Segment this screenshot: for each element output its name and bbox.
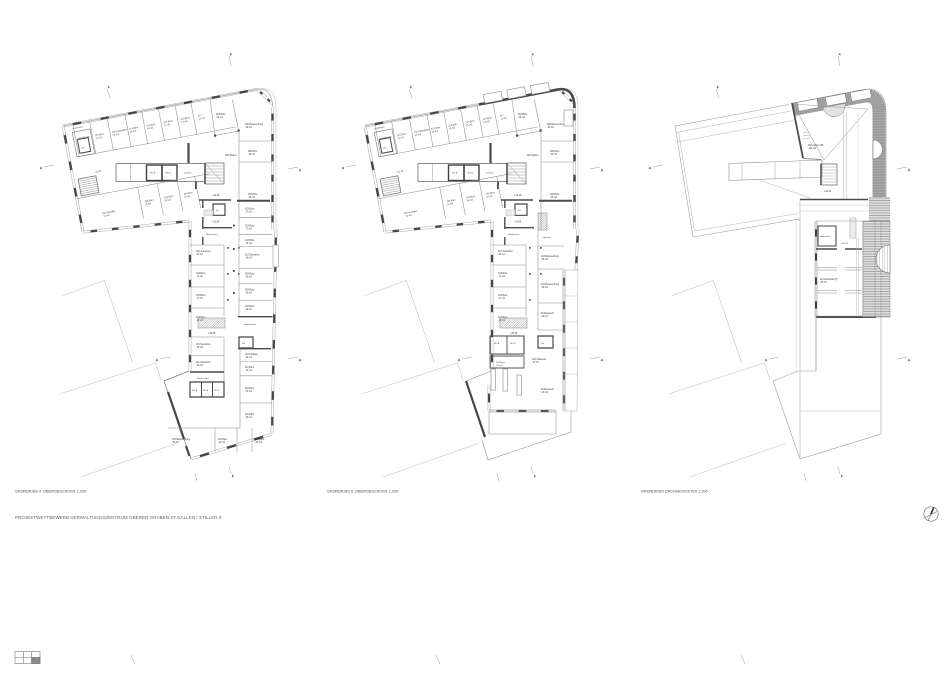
svg-text:A: A — [156, 358, 158, 362]
svg-text:10 m2: 10 m2 — [246, 357, 253, 359]
svg-text:110 Teambüro: 110 Teambüro — [196, 361, 211, 364]
svg-text:WC D: WC D — [214, 390, 220, 392]
svg-text:14 m2: 14 m2 — [219, 442, 226, 444]
svg-text:Lichthof: Lichthof — [184, 172, 192, 175]
svg-text:46 m2: 46 m2 — [548, 127, 555, 129]
svg-text:Lichthof: Lichthof — [486, 172, 494, 175]
svg-text:46 m2: 46 m2 — [246, 127, 253, 129]
svg-text:+15.08: +15.08 — [208, 332, 216, 335]
svg-text:17 m2: 17 m2 — [499, 276, 506, 278]
svg-text:A: A — [299, 358, 301, 362]
svg-text:103 Büro: 103 Büro — [196, 272, 206, 275]
svg-text:+12.46: +12.46 — [514, 194, 522, 197]
svg-text:96 Besprech: 96 Besprech — [541, 312, 555, 315]
svg-text:46 m2: 46 m2 — [551, 154, 558, 156]
svg-text:103 Büro: 103 Büro — [196, 294, 206, 297]
svg-text:26 m2: 26 m2 — [542, 316, 549, 318]
svg-text:A: A — [601, 358, 603, 362]
svg-text:46 m2: 46 m2 — [551, 197, 558, 199]
svg-text:PROJEKTWETTBEWERB VERWALTUNGSZ: PROJEKTWETTBEWERB VERWALTUNGSZENTRUM OBE… — [15, 515, 222, 520]
svg-text:103 Büro: 103 Büro — [245, 305, 255, 308]
svg-text:103 Büro: 103 Büro — [245, 208, 255, 211]
svg-text:WC A: WC A — [494, 342, 500, 345]
svg-text:26 m2: 26 m2 — [542, 392, 549, 394]
svg-text:206 Büro: 206 Büro — [248, 150, 258, 153]
svg-text:25 m2: 25 m2 — [246, 391, 253, 393]
svg-text:16 m2: 16 m2 — [246, 277, 253, 279]
svg-text:30 m2: 30 m2 — [173, 442, 180, 444]
svg-text:46 m2: 46 m2 — [249, 154, 256, 156]
svg-text:103 Büro: 103 Büro — [245, 289, 255, 292]
svg-text:200 Warten: 200 Warten — [225, 154, 238, 157]
svg-text:GRUNDRISS 5. OBERGESCHOSS 1:20: GRUNDRISS 5. OBERGESCHOSS 1:200 — [327, 490, 398, 494]
svg-text:A: A — [649, 166, 651, 170]
svg-text:A: A — [908, 358, 910, 362]
svg-text:200 Warten: 200 Warten — [527, 154, 540, 157]
svg-text:17 m2: 17 m2 — [499, 298, 506, 300]
svg-text:218 Büro: 218 Büro — [216, 113, 226, 116]
svg-text:Nebenraum: Nebenraum — [206, 233, 218, 236]
svg-text:23 m2: 23 m2 — [519, 117, 526, 119]
svg-text:16 m2: 16 m2 — [197, 365, 204, 367]
svg-text:23 m2: 23 m2 — [217, 117, 224, 119]
svg-text:103 Büro: 103 Büro — [498, 272, 508, 275]
svg-text:Nebenraum: Nebenraum — [820, 236, 831, 238]
svg-text:46 m2: 46 m2 — [249, 197, 256, 199]
svg-text:26 m2: 26 m2 — [246, 417, 253, 419]
svg-text:WC B: WC B — [510, 343, 516, 345]
svg-text:110 Kopfbau: 110 Kopfbau — [245, 354, 259, 356]
svg-text:124 Besprechung: 124 Besprechung — [541, 283, 560, 286]
svg-text:103 Teambüro: 103 Teambüro — [196, 250, 211, 253]
svg-text:WC A: WC A — [192, 389, 198, 392]
svg-text:A: A — [601, 168, 603, 172]
svg-text:GRUNDRISS DACHGESCHOSS 1:200: GRUNDRISS DACHGESCHOSS 1:200 — [641, 490, 708, 494]
svg-text:103 Büro: 103 Büro — [245, 225, 255, 228]
svg-text:17 m2: 17 m2 — [246, 212, 253, 214]
svg-text:17 m2: 17 m2 — [197, 276, 204, 278]
svg-text:116 Teambüro: 116 Teambüro — [245, 254, 260, 257]
svg-text:WC A: WC A — [166, 172, 172, 175]
svg-text:12 m2: 12 m2 — [246, 370, 253, 372]
svg-text:+13.08: +13.08 — [212, 222, 220, 224]
svg-text:206 Büro: 206 Büro — [248, 193, 258, 196]
svg-text:102 Cafeteria: 102 Cafeteria — [532, 358, 547, 361]
svg-text:124 Besprechung: 124 Besprechung — [541, 255, 560, 258]
svg-text:16 m2: 16 m2 — [246, 293, 253, 295]
svg-text:26 m2: 26 m2 — [542, 259, 549, 261]
svg-text:26 m2: 26 m2 — [499, 254, 506, 256]
svg-text:206 Büro: 206 Büro — [550, 193, 560, 196]
svg-text:WC B: WC B — [150, 173, 156, 175]
svg-text:+16.42: +16.42 — [824, 191, 832, 193]
svg-text:16 m2: 16 m2 — [246, 309, 253, 311]
svg-text:218 Büro: 218 Büro — [518, 113, 528, 116]
svg-text:101 Büro: 101 Büro — [496, 361, 506, 364]
svg-text:12 m2: 12 m2 — [497, 365, 504, 367]
svg-text:96 Besprech: 96 Besprech — [541, 388, 555, 391]
svg-text:A: A — [40, 166, 42, 170]
svg-text:16 m2: 16 m2 — [197, 347, 204, 349]
svg-text:26 m2: 26 m2 — [246, 258, 253, 260]
svg-text:Lift: Lift — [242, 342, 245, 345]
svg-text:Nebenraum: Nebenraum — [508, 233, 520, 236]
svg-text:26 m2: 26 m2 — [256, 442, 263, 444]
svg-text:103 Besprechung: 103 Besprechung — [172, 438, 191, 441]
svg-text:206 Besprechung: 206 Besprechung — [245, 123, 264, 126]
svg-text:A: A — [342, 166, 344, 170]
svg-text:202 Atelier 160: 202 Atelier 160 — [808, 144, 824, 147]
svg-text:WC B: WC B — [452, 173, 458, 175]
svg-text:110 Büro: 110 Büro — [245, 366, 255, 369]
svg-text:17 m2: 17 m2 — [246, 229, 253, 231]
svg-text:+15.08: +15.08 — [510, 332, 518, 335]
svg-text:A: A — [458, 358, 460, 362]
svg-text:GRUNDRISS 4. OBERGESCHOSS 1:20: GRUNDRISS 4. OBERGESCHOSS 1:200 — [15, 490, 86, 494]
svg-text:Nebenraum: Nebenraum — [197, 377, 209, 380]
svg-text:103 Teambüro: 103 Teambüro — [498, 250, 513, 253]
svg-text:26 m2: 26 m2 — [542, 287, 549, 289]
svg-text:206 Besprechung: 206 Besprechung — [547, 123, 566, 126]
svg-text:103 Büro: 103 Büro — [245, 273, 255, 276]
svg-text:26 m2: 26 m2 — [197, 254, 204, 256]
svg-text:206 Büro: 206 Büro — [550, 150, 560, 153]
svg-text:85 m2: 85 m2 — [821, 282, 828, 284]
svg-text:+16.42: +16.42 — [841, 243, 849, 245]
svg-text:Lift: Lift — [541, 342, 544, 345]
svg-text:Nebenraum: Nebenraum — [244, 323, 256, 326]
svg-text:110 Büro: 110 Büro — [245, 413, 255, 416]
svg-text:70 m2: 70 m2 — [533, 362, 540, 364]
svg-text:WC B: WC B — [203, 390, 209, 392]
svg-text:A: A — [299, 168, 301, 172]
svg-text:A: A — [908, 168, 910, 172]
svg-text:103 Büro: 103 Büro — [498, 294, 508, 297]
svg-text:Lift: Lift — [216, 209, 219, 212]
svg-text:110 Werkstatt (P): 110 Werkstatt (P) — [820, 278, 838, 281]
svg-text:Luftraum: Luftraum — [542, 236, 551, 239]
svg-text:WC A: WC A — [468, 172, 474, 175]
svg-text:+13.08: +13.08 — [514, 222, 522, 224]
svg-text:17 m2: 17 m2 — [197, 298, 204, 300]
svg-text:+12.46: +12.46 — [212, 194, 220, 197]
svg-text:110 Büro: 110 Büro — [245, 387, 255, 390]
svg-text:110 Büro: 110 Büro — [218, 438, 228, 441]
svg-text:103 Büro: 103 Büro — [245, 239, 255, 242]
svg-text:A: A — [765, 358, 767, 362]
svg-text:Lift: Lift — [518, 209, 521, 212]
svg-text:16 m2: 16 m2 — [246, 243, 253, 245]
svg-text:160 m2: 160 m2 — [809, 148, 817, 150]
svg-text:110 Büro: 110 Büro — [255, 438, 265, 441]
svg-text:110 Teambüro: 110 Teambüro — [196, 343, 211, 346]
